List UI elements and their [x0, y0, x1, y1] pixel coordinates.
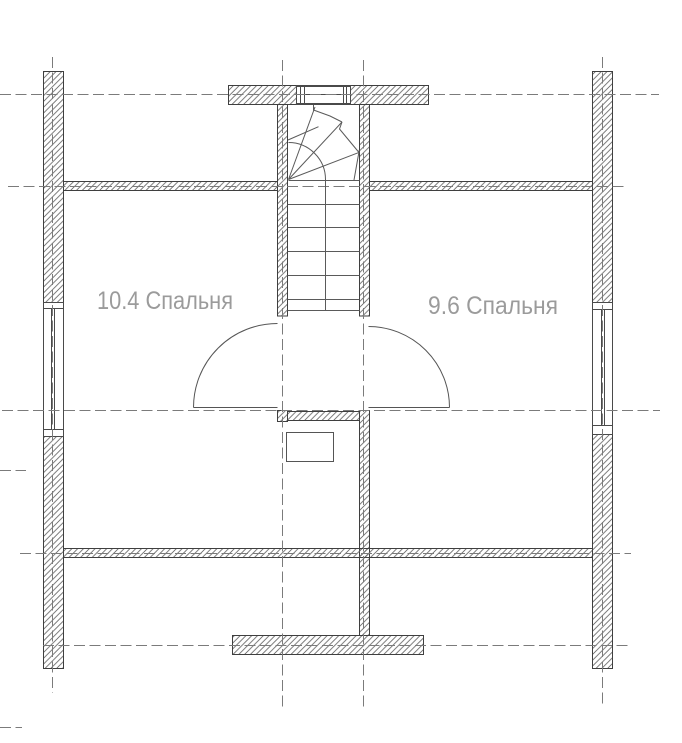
svg-text:10.4 Спальня: 10.4 Спальня	[97, 287, 233, 315]
svg-text:9.6 Спальня: 9.6 Спальня	[428, 292, 558, 320]
